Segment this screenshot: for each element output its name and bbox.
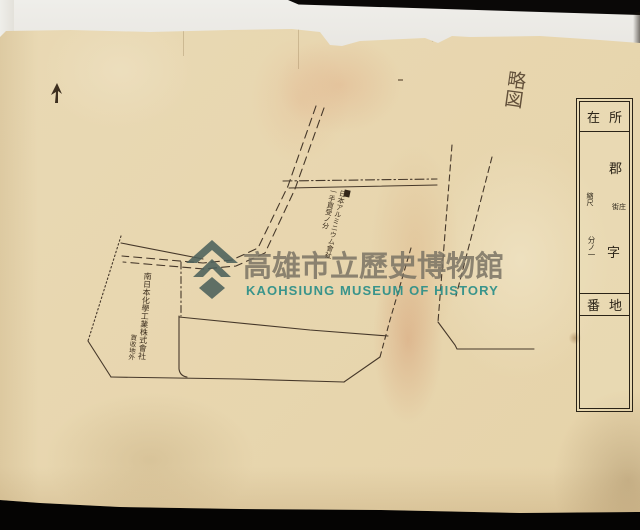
museum-logo-icon xyxy=(186,240,238,299)
form-lot-right: 地 xyxy=(609,295,622,314)
scanned-document: 高雄市立歷史博物館 KAOHSIUNG MUSEUM OF HISTORY 一手… xyxy=(0,0,640,530)
form-town-label: 街庄 xyxy=(612,202,626,212)
watermark-title-zh: 高雄市立歷史博物館 xyxy=(243,243,504,285)
parcel-top-dashdot xyxy=(283,179,437,181)
parcel-bottom-bend xyxy=(344,357,380,382)
paper-sheet: 高雄市立歷史博物館 KAOHSIUNG MUSEUM OF HISTORY 一手… xyxy=(0,0,640,530)
form-scale-label: 縮尺 xyxy=(585,192,595,206)
form-location-left: 在 xyxy=(587,107,600,126)
small-parcel-left-dotted xyxy=(88,236,121,341)
parcel-top-solid xyxy=(289,185,437,188)
inner-boundary-horizontal xyxy=(179,317,388,336)
small-parcel-top xyxy=(121,243,203,259)
form-location-cell: 在 所 xyxy=(580,102,629,132)
form-lot-cell: 番 地 xyxy=(580,293,629,316)
cadastral-form: 在 所 郡 街庄 縮尺 字 分ノ一 番 地 xyxy=(576,98,633,412)
inner-boundary-solid xyxy=(179,316,187,377)
cadastral-form-inner: 在 所 郡 街庄 縮尺 字 分ノ一 番 地 xyxy=(579,101,630,409)
north-arrow-icon xyxy=(51,83,62,103)
form-location-right: 所 xyxy=(609,107,622,126)
parcel-bottom-line xyxy=(111,377,344,382)
road-line-1 xyxy=(122,106,316,263)
small-parcel-left-solid xyxy=(88,341,111,377)
form-lot-left: 番 xyxy=(587,295,600,314)
form-body-cell: 郡 街庄 縮尺 字 分ノ一 xyxy=(580,132,629,293)
form-scale-value: 分ノ一 xyxy=(586,236,597,259)
watermark-title-en: KAOHSIUNG MUSEUM OF HISTORY xyxy=(246,283,499,298)
parcel-right-corner xyxy=(438,322,534,349)
form-aza-label: 字 xyxy=(607,242,620,261)
handwritten-note-company-sub: 買收地外 xyxy=(126,334,135,361)
form-district-label: 郡 xyxy=(609,158,622,177)
handwritten-note-title: 略図 xyxy=(500,69,525,109)
